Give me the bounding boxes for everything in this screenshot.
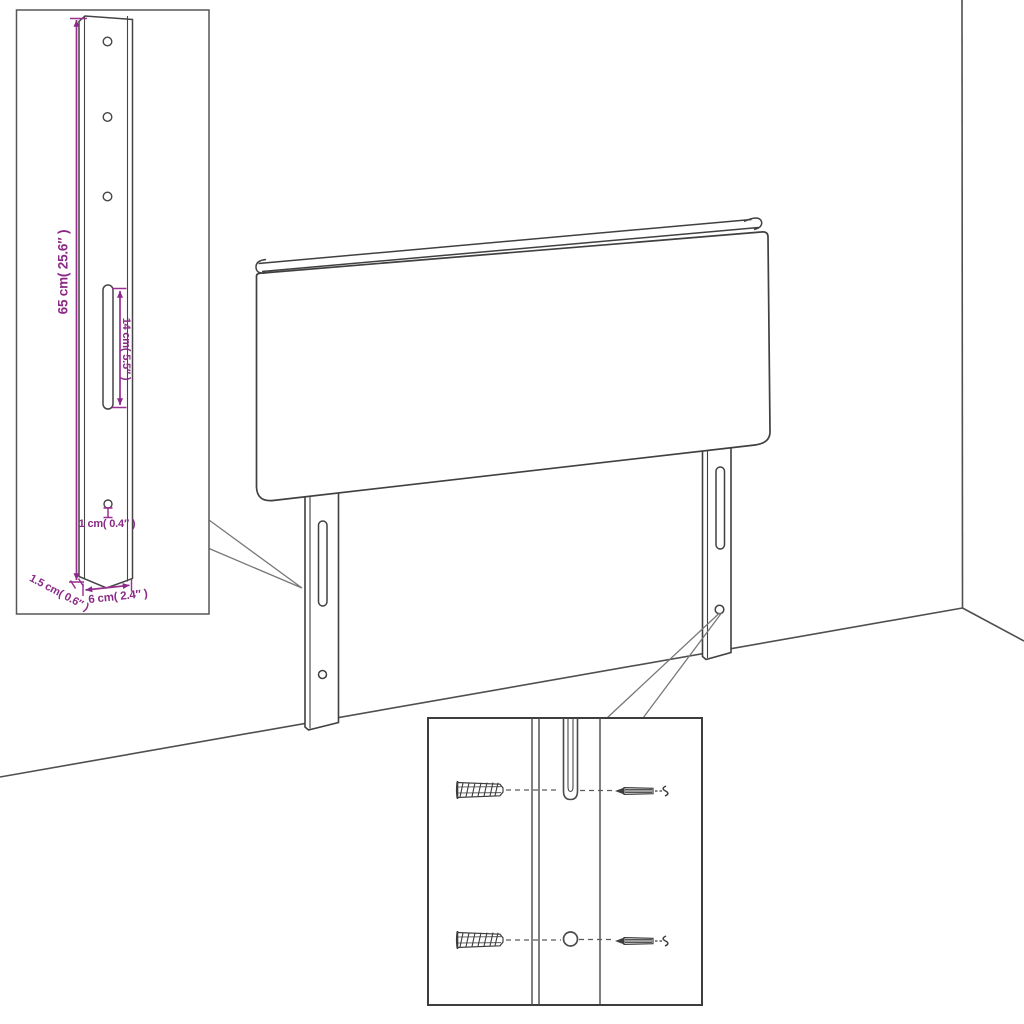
right-leg-hole — [715, 605, 724, 614]
detail-leg — [79, 16, 133, 588]
headboard-front-face — [257, 232, 771, 501]
detail-leg-slot — [103, 285, 113, 409]
detail-leg-hole-3 — [103, 192, 112, 201]
headboard — [256, 218, 770, 501]
right-leg-slot — [716, 467, 725, 549]
left-mounting-leg — [305, 490, 339, 730]
diagram-page: 65 cm( 25.6″ ) 14 cm( 5.5″ ) 1 cm( 0.4″ … — [0, 0, 1024, 1024]
wall-corner-line — [962, 0, 963, 608]
right-mounting-leg — [703, 435, 732, 660]
detail-leg-bottom-hole — [104, 500, 112, 508]
left-leg-slot — [319, 521, 328, 606]
callout-lines — [209, 520, 722, 718]
callout-to-left-leg — [209, 520, 302, 588]
detail-leg-hole-2 — [103, 113, 112, 122]
wall-plug-top — [457, 781, 504, 799]
dim-label-slot-length: 14 cm( 5.5″ ) — [120, 318, 132, 381]
dim-label-leg-height: 65 cm( 25.6″ ) — [56, 230, 71, 315]
dim-label-hole-diameter: 1 cm( 0.4″ ) — [79, 518, 136, 530]
left-leg-hole — [319, 671, 327, 679]
hardware-detail-box — [428, 718, 702, 1005]
floor-line-right — [963, 608, 1024, 641]
diagram-canvas — [0, 0, 1024, 1024]
detail-leg-hole-1 — [103, 37, 112, 46]
closeup-hole — [564, 932, 578, 946]
wall-plug-bottom — [457, 931, 504, 949]
